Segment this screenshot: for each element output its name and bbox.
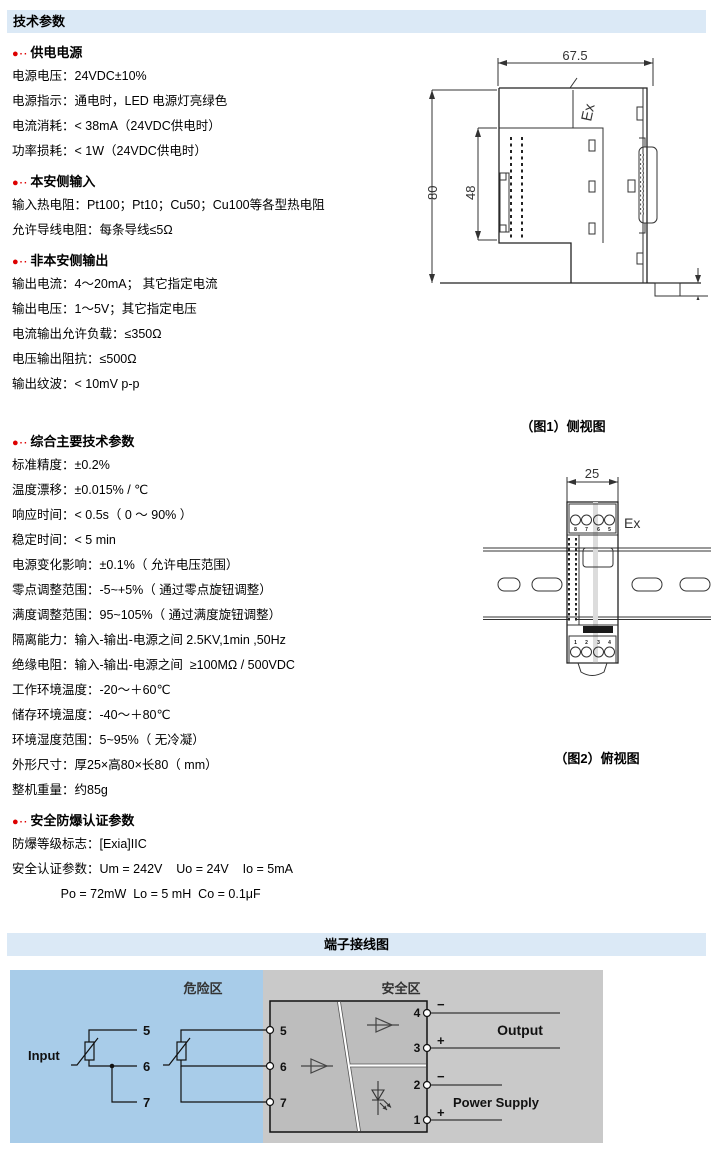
figure1-side-view-drawing: 67.5 80 48 Ex — [425, 40, 713, 300]
red-bullet-icon: ● — [12, 256, 19, 268]
spec-line: 绝缘电阻：输入-输出-电源之间 ≥100MΩ / 500VDC — [12, 653, 452, 678]
box-terminal-2: 2 — [414, 1078, 421, 1092]
section-heading-text: 供电电源 — [30, 45, 82, 60]
section-power-supply: ●··供电电源 电源电压：24VDC±10% 电源指示：通电时，LED 电源灯亮… — [12, 43, 452, 164]
spec-line: 安全认证参数：Um = 242V Uo = 24V Io = 5mA — [12, 857, 452, 882]
section-heading: ●··安全防爆认证参数 — [12, 811, 452, 832]
spec-line: Po = 72mW Lo = 5 mH Co = 0.1μF — [12, 882, 452, 907]
power-supply-label: Power Supply — [453, 1095, 540, 1110]
section-ex-certification: ●··安全防爆认证参数 防爆等级标志：[Exia]IIC 安全认证参数：Um =… — [12, 811, 452, 907]
box-terminal-5: 5 — [280, 1024, 287, 1038]
box-terminal-7: 7 — [280, 1096, 287, 1110]
spec-line: 防爆等级标志：[Exia]IIC — [12, 832, 452, 857]
section-heading: ●··非本安侧输出 — [12, 251, 452, 272]
top-terminal-number: 7 — [585, 527, 588, 533]
section-heading-text: 非本安侧输出 — [30, 253, 108, 268]
spec-line: 稳定时间：< 5 min — [12, 528, 452, 553]
figure2-caption: （图2）俯视图 — [497, 748, 697, 767]
stub-terminal-5: 5 — [143, 1023, 150, 1038]
terminal-wiring-diagram: 危险区 安全区 Input 5 6 7 — [10, 969, 605, 1147]
box-terminal-3: 3 — [414, 1041, 421, 1055]
dot-leader: ·· — [20, 817, 29, 828]
section-nonis-output: ●··非本安侧输出 输出电流：4～20mA； 其它指定电流 输出电压：1～5V；… — [12, 251, 452, 397]
page-title: 技术参数 — [13, 14, 65, 29]
output-plus-sign: + — [437, 1033, 445, 1048]
box-terminal-1: 1 — [414, 1113, 421, 1127]
spec-line: 隔离能力：输入-输出-电源之间 2.5KV,1min ,50Hz — [12, 628, 452, 653]
dim-67-5: 67.5 — [562, 48, 587, 63]
safe-zone-label: 安全区 — [381, 981, 420, 996]
dot-leader: ·· — [20, 438, 29, 449]
ex-marking-label: Ex — [624, 515, 640, 531]
spec-line: 输入热电阻：Pt100；Pt10；Cu50；Cu100等各型热电阻 — [12, 193, 452, 218]
spec-line: 输出电压：1～5V；其它指定电压 — [12, 297, 452, 322]
spec-line: 输出电流：4～20mA； 其它指定电流 — [12, 272, 452, 297]
spec-line: 电流消耗：< 38mA（24VDC供电时） — [12, 114, 452, 139]
red-bullet-icon: ● — [12, 816, 19, 828]
tech-params-header-bar: 技术参数 — [7, 10, 706, 33]
spec-line: 工作环境温度：-20～＋60℃ — [12, 678, 452, 703]
dot-leader: ·· — [20, 49, 29, 60]
bottom-terminal-number: 1 — [574, 640, 577, 646]
bottom-terminal-number: 4 — [608, 640, 611, 646]
bottom-terminal-number: 3 — [597, 640, 600, 646]
nameplate-strip — [583, 626, 613, 633]
spec-line: 零点调整范围：-5~+5%（ 通过零点旋钮调整） — [12, 578, 452, 603]
spec-line: 储存环境温度：-40～＋80℃ — [12, 703, 452, 728]
output-label: Output — [497, 1022, 543, 1038]
spec-line: 电源指示：通电时，LED 电源灯亮绿色 — [12, 89, 452, 114]
top-terminal-number: 8 — [574, 527, 577, 533]
mounting-clip — [578, 663, 607, 676]
section-heading-text: 安全防爆认证参数 — [30, 813, 134, 828]
dot-leader: ·· — [20, 257, 29, 268]
spec-sections: ●··供电电源 电源电压：24VDC±10% 电源指示：通电时，LED 电源灯亮… — [12, 36, 452, 915]
spec-line: 满度调整范围：95~105%（ 通过满度旋钮调整） — [12, 603, 452, 628]
section-heading: ●··综合主要技术参数 — [12, 432, 452, 453]
red-bullet-icon: ● — [12, 437, 19, 449]
spec-line: 输出纹波：< 10mV p-p — [12, 372, 452, 397]
spec-line: 响应时间：< 0.5s（ 0 ～ 90% ） — [12, 503, 452, 528]
red-bullet-icon: ● — [12, 177, 19, 189]
top-terminal-number: 6 — [597, 527, 600, 533]
wiring-header-bar: 端子接线图 — [7, 933, 706, 956]
din-rail-profile — [639, 138, 657, 233]
section-heading-text: 综合主要技术参数 — [30, 434, 134, 449]
spec-line: 功率损耗：< 1W（24VDC供电时） — [12, 139, 452, 164]
stub-terminal-6: 6 — [143, 1059, 150, 1074]
output-minus-sign: − — [437, 997, 445, 1012]
spec-line: 电压输出阻抗：≤500Ω — [12, 347, 452, 372]
dot-leader: ·· — [20, 178, 29, 189]
wiring-title: 端子接线图 — [324, 937, 389, 952]
spec-line: 电流输出允许负载：≤350Ω — [12, 322, 452, 347]
spec-line: 电源变化影响：±0.1%（ 允许电压范围） — [12, 553, 452, 578]
spec-line: 允许导线电阻：每条导线≤5Ω — [12, 218, 452, 243]
junction-dot — [110, 1064, 115, 1069]
spec-line: 整机重量：约85g — [12, 778, 452, 803]
dim-48: 48 — [463, 186, 478, 200]
top-terminal-number: 5 — [608, 527, 611, 533]
box-terminal-4: 4 — [414, 1006, 421, 1020]
power-plus-sign: + — [437, 1105, 445, 1120]
spec-line: 环境湿度范围：5~95%（ 无冷凝） — [12, 728, 452, 753]
spec-line: 温度漂移：±0.015% / ℃ — [12, 478, 452, 503]
spec-line: 电源电压：24VDC±10% — [12, 64, 452, 89]
red-bullet-icon: ● — [12, 48, 19, 60]
section-general-params: ●··综合主要技术参数 标准精度：±0.2% 温度漂移：±0.015% / ℃ … — [12, 432, 452, 803]
section-is-input: ●··本安侧输入 输入热电阻：Pt100；Pt10；Cu50；Cu100等各型热… — [12, 172, 452, 243]
section-heading: ●··本安侧输入 — [12, 172, 452, 193]
dim-25: 25 — [585, 466, 599, 481]
section-heading-text: 本安侧输入 — [30, 174, 95, 189]
box-terminal-6: 6 — [280, 1060, 287, 1074]
spec-line: 标准精度：±0.2% — [12, 453, 452, 478]
spec-line: 外形尺寸：厚25×高80×长80（ mm） — [12, 753, 452, 778]
datasheet-page: 技术参数 ●··供电电源 电源电压：24VDC±10% 电源指示：通电时，LED… — [0, 0, 713, 1164]
section-heading: ●··供电电源 — [12, 43, 452, 64]
stub-terminal-7: 7 — [143, 1095, 150, 1110]
input-label: Input — [28, 1048, 60, 1063]
hazard-zone-label: 危险区 — [183, 981, 222, 996]
power-minus-sign: − — [437, 1069, 445, 1084]
bottom-terminal-number: 2 — [585, 640, 588, 646]
ex-marking-label: Ex — [578, 102, 598, 123]
figure2-top-view-drawing: 25 8 7 6 5 Ex — [480, 460, 713, 690]
figure1-caption: （图1）侧视图 — [463, 416, 663, 435]
